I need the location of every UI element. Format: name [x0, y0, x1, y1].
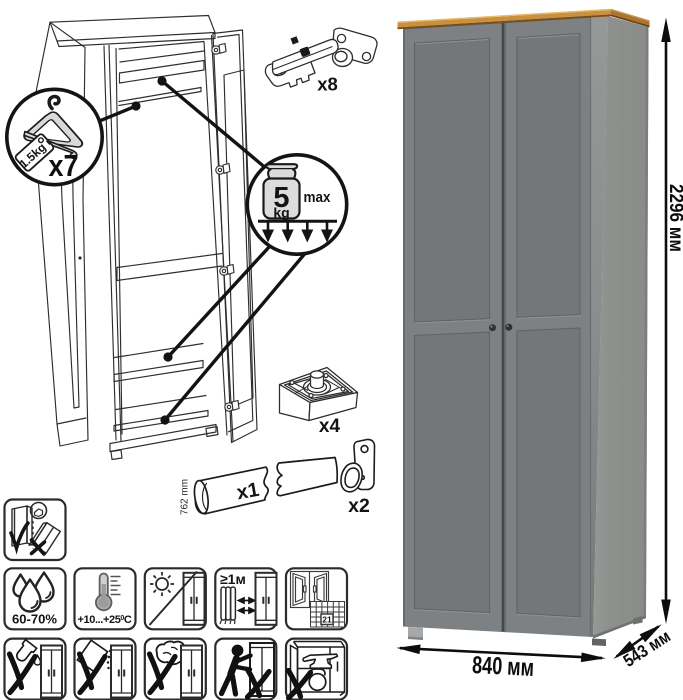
svg-text:kg: kg: [273, 205, 289, 221]
svg-text:21: 21: [322, 615, 332, 625]
svg-text:x4: x4: [319, 416, 341, 437]
svg-text:840 мм: 840 мм: [471, 652, 534, 682]
svg-text:2296 мм: 2296 мм: [665, 184, 683, 252]
svg-text:x1: x1: [235, 479, 261, 505]
svg-text:≥1м: ≥1м: [220, 571, 246, 587]
svg-text:x2: x2: [348, 495, 370, 517]
svg-text:x8: x8: [317, 74, 338, 95]
svg-text:max: max: [304, 189, 332, 206]
svg-text:60-70%: 60-70%: [12, 612, 57, 627]
svg-text:x7: x7: [49, 148, 79, 183]
svg-text:+10...+250C: +10...+250C: [78, 614, 132, 626]
svg-text:762 mm: 762 mm: [180, 479, 191, 515]
